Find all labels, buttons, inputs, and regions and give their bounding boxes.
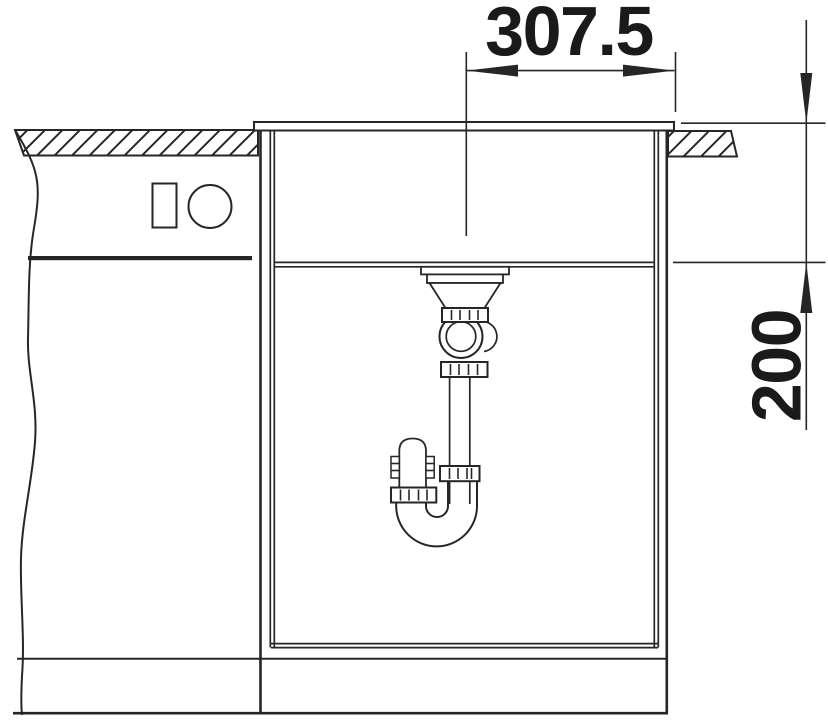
arrow-down-icon (800, 73, 812, 123)
control-knob-symbol (189, 185, 232, 228)
technical-drawing-canvas: 307.5 200 (0, 0, 828, 721)
dimension-vertical: 200 (673, 20, 826, 430)
coupling-nut-lower (441, 362, 488, 377)
sink-cabinet (13, 130, 668, 714)
worktop-right-slab (668, 131, 737, 157)
strainer-flange-lower (427, 274, 503, 283)
worktop-left (15, 130, 258, 156)
sink-installation-drawing: 307.5 200 (0, 0, 828, 721)
dimension-horizontal: 307.5 (466, 0, 675, 236)
dimension-label-depth: 200 (738, 310, 816, 422)
dimension-label-width: 307.5 (485, 0, 653, 70)
strainer-body-taper (430, 283, 501, 308)
arrow-up-icon (800, 262, 812, 313)
trap-coupling-left (391, 488, 436, 503)
drain-assembly (421, 267, 509, 466)
trap-outlet-riser (399, 439, 426, 488)
worktop-right (668, 131, 737, 157)
break-line (15, 130, 38, 715)
siphon-trap (391, 439, 480, 547)
sink-basin (254, 122, 674, 267)
coupling-nut-upper (442, 308, 488, 322)
drawer-front-gap (28, 256, 252, 260)
sink-rim (254, 122, 674, 131)
control-rectangle-symbol (153, 184, 177, 228)
worktop-left-slab (15, 130, 258, 156)
trap-coupling-right (440, 466, 480, 481)
adjacent-cabinet (28, 130, 261, 714)
strainer-flange-upper (421, 267, 509, 275)
